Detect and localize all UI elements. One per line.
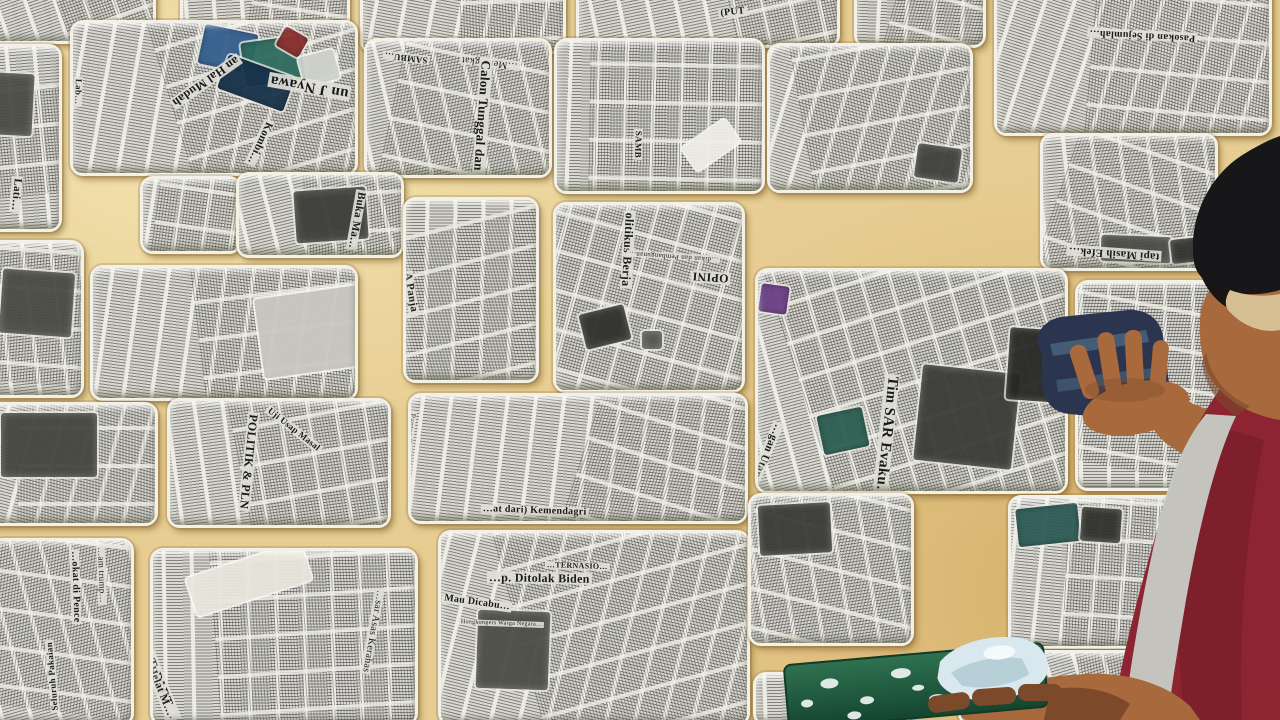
newsprint: Harga Pertamina… [961, 653, 1171, 720]
newsprint [0, 405, 155, 523]
brick [753, 672, 911, 720]
newsprint-texture [0, 541, 131, 720]
newsprint-texture [149, 179, 239, 251]
paper-fragment [254, 285, 355, 379]
brick: Buka Ma… [236, 172, 404, 258]
color-photo-fragment [758, 283, 790, 315]
headline-fragment: OPINI [690, 270, 731, 285]
brick [854, 0, 986, 48]
brick: POLITIK & PLNUji Usap Masal [167, 398, 391, 528]
photo-fragment [0, 72, 35, 137]
photo-fragment [642, 331, 662, 349]
brick: un J Nyawaan Hal MudahKombi…Lab… [70, 20, 358, 176]
headline-fragment: SAMB [633, 129, 643, 160]
newsprint: tapi Masih Efek… [1043, 136, 1215, 268]
brick: SAMB [554, 38, 765, 194]
newsprint-texture [587, 41, 762, 191]
photo-frame: (PUTPasokan di Sejumlah…Lati…un J Nyawaa… [0, 0, 1280, 720]
photo-fragment [1080, 507, 1122, 544]
brick: Tim SAR Evaku……gan Utang [755, 268, 1068, 494]
newsprint: POLITIK & PLNUji Usap Masal [170, 401, 388, 525]
headline-fragment: Lab… [73, 77, 83, 107]
photo-fragment [913, 364, 1020, 470]
brick [748, 493, 914, 646]
brick: olitikus BerjaOPINI…dikan dan Pembanguna… [553, 202, 745, 393]
brick [767, 43, 973, 193]
brick: ART. PART…Helat M……sar Asas Kerahas [150, 548, 418, 720]
brick [1008, 495, 1242, 649]
newsprint: Lati… [0, 47, 59, 229]
brick: Pasokan di Sejumlah… [994, 0, 1272, 136]
color-photo-fragment [1015, 503, 1081, 547]
brick: SAMBU……MeningkatCalon Tunggal dan [364, 38, 552, 178]
brick: Pantes Soal Klaim WHO di P……at dari) Kem… [408, 393, 748, 524]
photo-fragment [1170, 236, 1212, 264]
newsprint [1011, 498, 1239, 646]
headline-fragment: …am trump… [96, 545, 107, 605]
newsprint: ART. PART…Helat M……sar Asas Kerahas [153, 551, 415, 720]
brick [90, 265, 358, 401]
newsprint-texture [877, 0, 983, 45]
brick: Lati… [0, 44, 62, 232]
photo-fragment [914, 143, 962, 183]
newsprint [93, 268, 355, 398]
newsprint [756, 675, 908, 720]
photo-fragment [758, 502, 833, 556]
brick [140, 176, 242, 254]
newsprint-texture [556, 205, 742, 390]
newsprint: A Panja [406, 200, 536, 380]
brick [1075, 280, 1246, 491]
newsprint: …okat di Pence…am trump…Seluruh Pakaian [0, 541, 131, 720]
newsprint [770, 46, 970, 190]
newsprint: …TERNASIO……p. Ditolak BidenMau Dicabu…Ho… [441, 533, 747, 720]
newsprint-texture [1077, 0, 1269, 133]
newsprint-texture [1078, 283, 1243, 488]
newsprint [1078, 283, 1243, 488]
newsprint: un J Nyawaan Hal MudahKombi…Lab… [73, 23, 355, 173]
newsprint: Pantes Soal Klaim WHO di P……at dari) Kem… [411, 396, 745, 521]
newsprint [751, 496, 911, 643]
headline-fragment: Lati… [9, 176, 23, 213]
newsprint: olitikus BerjaOPINI…dikan dan Pembanguna… [556, 205, 742, 390]
newsprint [143, 179, 239, 251]
newsprint: SAMBU……MeningkatCalon Tunggal dan [367, 41, 549, 175]
brick: Harga Pertamina… [958, 650, 1174, 720]
photo-fragment [0, 269, 75, 338]
brick: tapi Masih Efek… [1040, 133, 1218, 271]
brick: A Panja [403, 197, 539, 383]
newsprint: Buka Ma… [239, 175, 401, 255]
brick [0, 402, 158, 526]
newsprint: SAMB [557, 41, 762, 191]
headline-fragment: …okat di Pence [69, 549, 82, 625]
brick: …TERNASIO……p. Ditolak BidenMau Dicabu…Ho… [438, 530, 750, 720]
headline-fragment: …p. Ditolak Biden [487, 571, 592, 585]
photo-fragment [1, 413, 97, 477]
headline-fragment: Harga Pertamina… [1128, 657, 1140, 720]
photo-fragment [1006, 327, 1065, 403]
brick [0, 240, 84, 398]
brick: …okat di Pence…am trump…Seluruh Pakaian [0, 538, 134, 720]
newsprint: Pasokan di Sejumlah… [997, 0, 1269, 133]
newsprint: Tim SAR Evaku……gan Utang [758, 271, 1065, 491]
newsprint [0, 243, 81, 395]
newsprint [857, 0, 983, 45]
